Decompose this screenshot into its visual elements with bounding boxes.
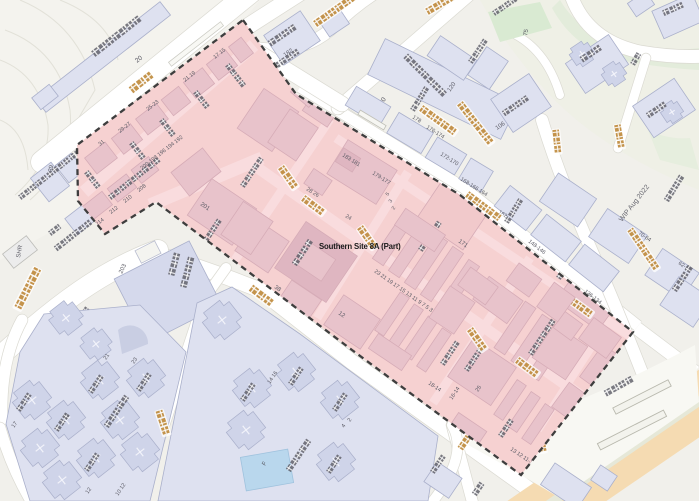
svg-text:Southern Site 8A (Part): Southern Site 8A (Part): [319, 242, 401, 251]
